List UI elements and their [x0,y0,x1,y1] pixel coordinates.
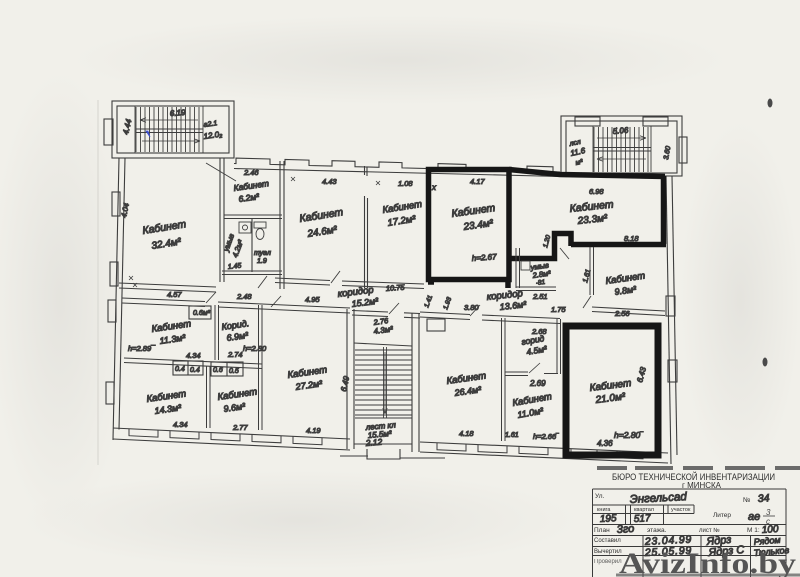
svg-text:участок: участок [671,507,691,513]
svg-text:книга: книга [597,507,611,513]
svg-text:34: 34 [757,492,770,505]
svg-text:2.69: 2.69 [529,379,546,388]
svg-text:лист №: лист № [699,527,720,534]
svg-text:ае: ае [748,511,760,523]
svg-text:h=2.67: h=2.67 [472,252,498,263]
svg-text:1.61: 1.61 [505,432,519,439]
svg-text:Проверил: Проверил [594,559,622,565]
svg-text:h=2.80: h=2.80 [243,344,267,353]
svg-text:h=2.80‾: h=2.80‾ [614,430,643,440]
svg-text:этажа.: этажа. [647,527,667,534]
svg-text:4.95: 4.95 [305,295,320,304]
svg-text:517: 517 [634,513,652,525]
svg-text:3го: 3го [616,523,634,536]
svg-text:0.5: 0.5 [229,368,239,375]
svg-text:0.4: 0.4 [190,367,200,374]
svg-text:4.18: 4.18 [459,429,474,438]
svg-text:4.19: 4.19 [306,426,321,435]
svg-text:Составил: Составил [594,538,621,544]
svg-text:Вычертил: Вычертил [594,549,622,555]
svg-text:2.48: 2.48 [236,292,252,301]
svg-text:4.57: 4.57 [167,290,182,299]
svg-text:4.34: 4.34 [173,420,188,429]
svg-text:h=2.66‾: h=2.66‾ [533,432,559,441]
svg-text:4.43: 4.43 [322,177,337,186]
svg-text:Ул.: Ул. [595,493,604,500]
svg-text:8.18: 8.18 [624,234,639,243]
svg-text:1.08: 1.08 [398,179,413,188]
svg-text:квартал: квартал [634,507,654,513]
svg-text:4.17: 4.17 [470,177,485,186]
svg-text:1.75: 1.75 [551,305,566,314]
svg-text:4.36: 4.36 [597,439,613,448]
svg-text:М 1:: М 1: [747,527,760,534]
svg-text:5.06: 5.06 [612,126,629,136]
svg-text:2.56: 2.56 [614,309,630,318]
svg-text:2.68: 2.68 [531,327,547,336]
svg-text:h=2.89¯: h=2.89¯ [128,344,156,353]
svg-text:0.6: 0.6 [213,367,223,374]
svg-text:3.80: 3.80 [464,303,479,312]
svg-text:2.46: 2.46 [243,168,259,177]
svg-text:1.9: 1.9 [257,258,267,265]
svg-text:План: План [594,527,610,534]
svg-text:туал: туал [254,250,271,257]
svg-text:Литер: Литер [713,512,731,519]
svg-text:1.45: 1.45 [227,263,241,271]
svg-text:0.6м²: 0.6м² [193,310,211,317]
svg-text:2.77: 2.77 [232,423,248,432]
svg-text:10.75: 10.75 [386,283,406,293]
svg-text:№: № [743,497,751,504]
svg-text:2.74: 2.74 [227,350,243,359]
svg-text:195: 195 [600,513,618,525]
svg-text:6.98: 6.98 [589,187,604,196]
svg-text:6.19: 6.19 [170,108,187,118]
svg-text:2.12: 2.12 [364,437,383,449]
svg-text:AvizInfo.by: AvizInfo.by [619,547,796,577]
svg-text:·81: ·81 [535,279,546,287]
svg-text:4.34: 4.34 [186,351,201,360]
svg-text:0.4: 0.4 [175,366,185,373]
svg-text:2.51: 2.51 [532,292,548,301]
